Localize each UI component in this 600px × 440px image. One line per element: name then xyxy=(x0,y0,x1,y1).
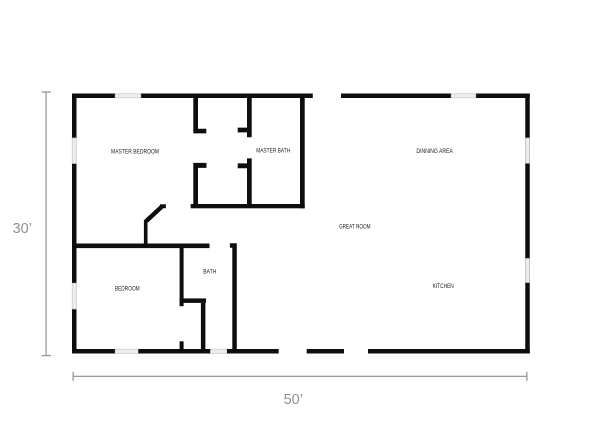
svg-text:30’: 30’ xyxy=(13,221,32,237)
svg-text:50’: 50’ xyxy=(284,392,303,408)
svg-text:MASTER BEDROOM: MASTER BEDROOM xyxy=(111,150,159,156)
svg-text:BEDROOM: BEDROOM xyxy=(115,286,140,292)
svg-text:GREAT ROOM: GREAT ROOM xyxy=(339,225,371,231)
svg-text:KITCHEN: KITCHEN xyxy=(433,284,454,290)
svg-text:DINNING AREA: DINNING AREA xyxy=(416,149,453,155)
svg-text:MASTER BATH: MASTER BATH xyxy=(256,148,290,154)
svg-text:BATH: BATH xyxy=(203,270,216,276)
